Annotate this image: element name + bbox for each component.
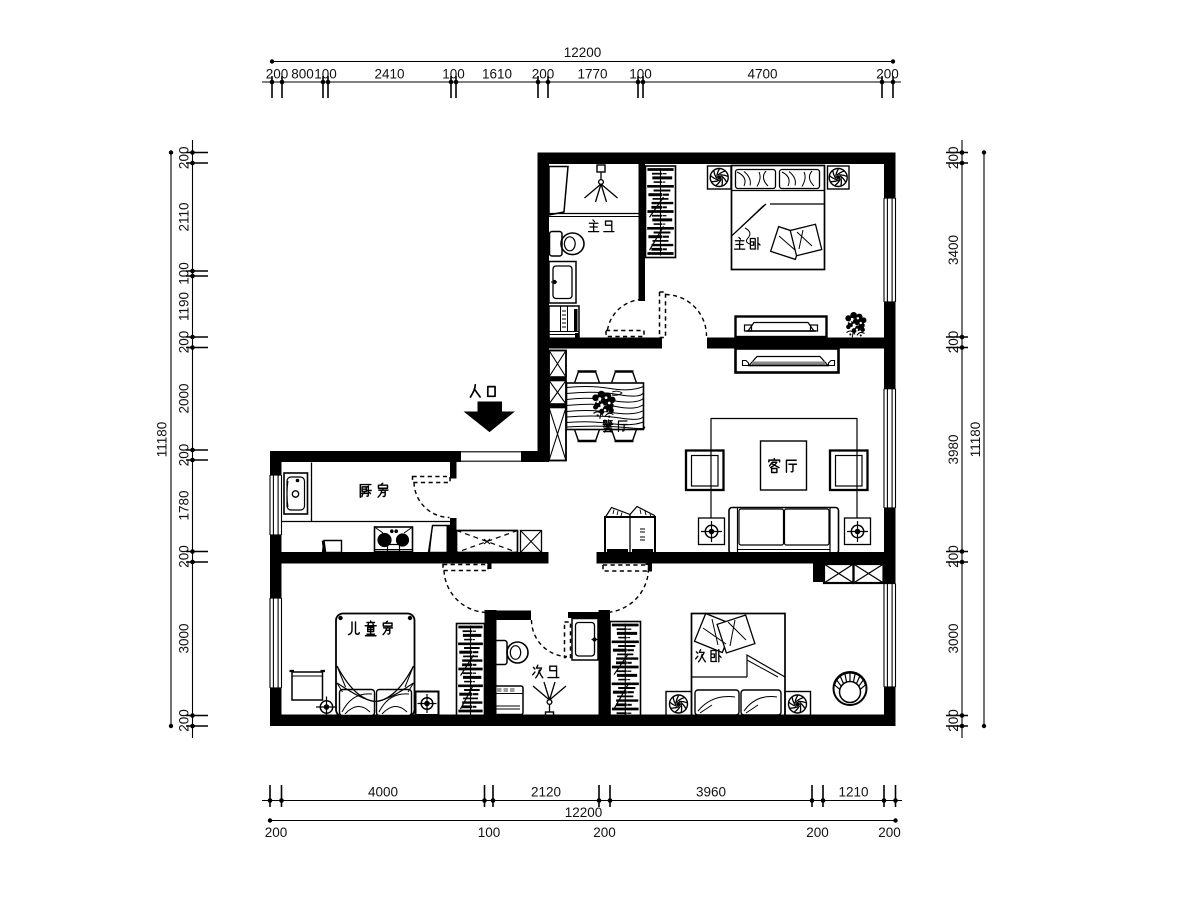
svg-text:4000: 4000: [368, 785, 398, 800]
svg-text:4700: 4700: [747, 67, 777, 82]
svg-text:200: 200: [177, 331, 192, 354]
svg-text:200: 200: [265, 825, 288, 840]
svg-text:200: 200: [946, 545, 961, 568]
svg-text:200: 200: [593, 825, 616, 840]
svg-text:3400: 3400: [946, 235, 961, 265]
svg-text:200: 200: [946, 147, 961, 170]
svg-text:800: 800: [291, 67, 314, 82]
svg-text:200: 200: [177, 444, 192, 467]
svg-text:12200: 12200: [565, 805, 603, 820]
svg-text:3960: 3960: [696, 785, 726, 800]
svg-text:100: 100: [442, 67, 465, 82]
svg-text:100: 100: [478, 825, 501, 840]
svg-text:1210: 1210: [838, 785, 868, 800]
svg-text:200: 200: [946, 331, 961, 354]
svg-text:200: 200: [806, 825, 829, 840]
svg-text:2120: 2120: [531, 785, 561, 800]
svg-text:11180: 11180: [155, 422, 170, 458]
svg-text:1780: 1780: [177, 490, 192, 520]
svg-text:11180: 11180: [968, 422, 983, 458]
svg-text:100: 100: [314, 67, 337, 82]
svg-text:200: 200: [177, 147, 192, 170]
svg-text:2410: 2410: [374, 67, 404, 82]
svg-text:200: 200: [876, 67, 899, 82]
svg-text:200: 200: [177, 545, 192, 568]
svg-text:3980: 3980: [946, 434, 961, 464]
svg-text:12200: 12200: [564, 45, 602, 60]
svg-text:100: 100: [629, 67, 652, 82]
svg-text:200: 200: [177, 709, 192, 732]
svg-text:1190: 1190: [177, 292, 192, 321]
svg-text:200: 200: [878, 825, 901, 840]
svg-text:100: 100: [177, 262, 192, 285]
svg-text:3000: 3000: [946, 623, 961, 653]
svg-text:2110: 2110: [177, 202, 192, 231]
svg-text:3000: 3000: [177, 623, 192, 653]
svg-text:1770: 1770: [577, 67, 607, 82]
svg-text:2000: 2000: [177, 383, 192, 413]
svg-text:200: 200: [946, 709, 961, 732]
svg-text:200: 200: [532, 67, 555, 82]
svg-text:200: 200: [266, 67, 289, 82]
svg-text:1610: 1610: [482, 67, 512, 82]
